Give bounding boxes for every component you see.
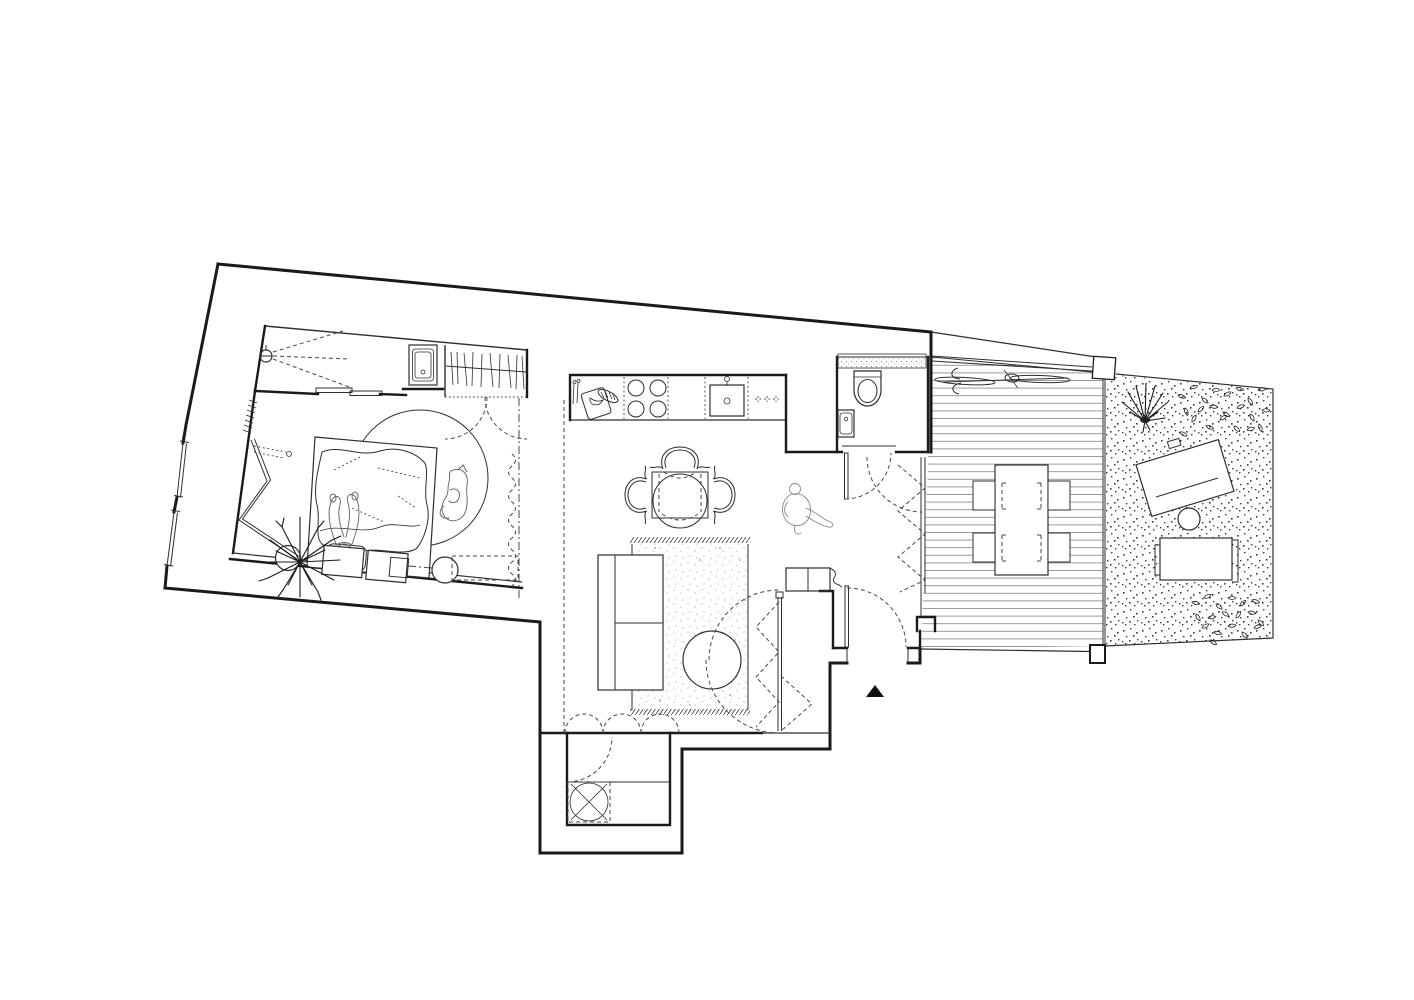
outdoor-chair [973, 481, 995, 510]
entry-direction-triangle [866, 685, 884, 697]
stool [432, 557, 458, 583]
dining-table [652, 472, 708, 518]
bedside-table [366, 550, 408, 582]
bathroom-washbasin [838, 410, 854, 437]
toilet [854, 371, 881, 406]
round-chair [653, 474, 707, 528]
cutting-board [573, 380, 620, 421]
dog [440, 465, 467, 521]
sofa [598, 555, 663, 690]
dining-area [625, 447, 735, 528]
living-room [564, 400, 812, 733]
kitchen-sink [710, 377, 744, 417]
shower-band [838, 354, 926, 368]
outdoor-chair [973, 533, 995, 562]
entry-door [845, 586, 849, 647]
gate-post [1092, 356, 1115, 379]
garden-stool [1178, 508, 1200, 530]
laundry-alcove [567, 737, 612, 822]
clothes-rail [446, 366, 526, 372]
cooktop [628, 380, 666, 417]
bedroom-washbasin [409, 345, 437, 385]
floor-plan-page [0, 0, 1414, 1000]
washing-machine [568, 782, 610, 822]
drying-rack-marks [755, 396, 779, 402]
entry [845, 457, 925, 697]
bedroom [239, 398, 519, 600]
floor-plan-svg [0, 0, 1414, 1000]
shower-room [260, 331, 437, 396]
rug-fringe [630, 537, 750, 543]
armchair-right [713, 466, 735, 524]
outdoor-table [995, 465, 1048, 575]
wardrobe [445, 345, 527, 439]
hanging-clothes [451, 352, 524, 389]
coffee-table [683, 631, 741, 689]
sun-lounger-straight [1155, 538, 1238, 582]
curtain-line [509, 454, 516, 586]
molding-profile [829, 568, 842, 587]
armchair-top [650, 447, 710, 469]
folding-screen [239, 439, 300, 559]
bedside-table [322, 545, 364, 577]
bathroom [838, 354, 926, 499]
bathroom-door [845, 453, 849, 499]
rug-fringe [630, 709, 750, 715]
standing-person [783, 484, 833, 535]
accordion-door [867, 457, 925, 593]
kitchen [573, 377, 779, 421]
deck-corner-block [1090, 645, 1105, 663]
armchair-left [625, 466, 647, 524]
outdoor-chair [1048, 481, 1070, 510]
outdoor-chair [1048, 533, 1070, 562]
